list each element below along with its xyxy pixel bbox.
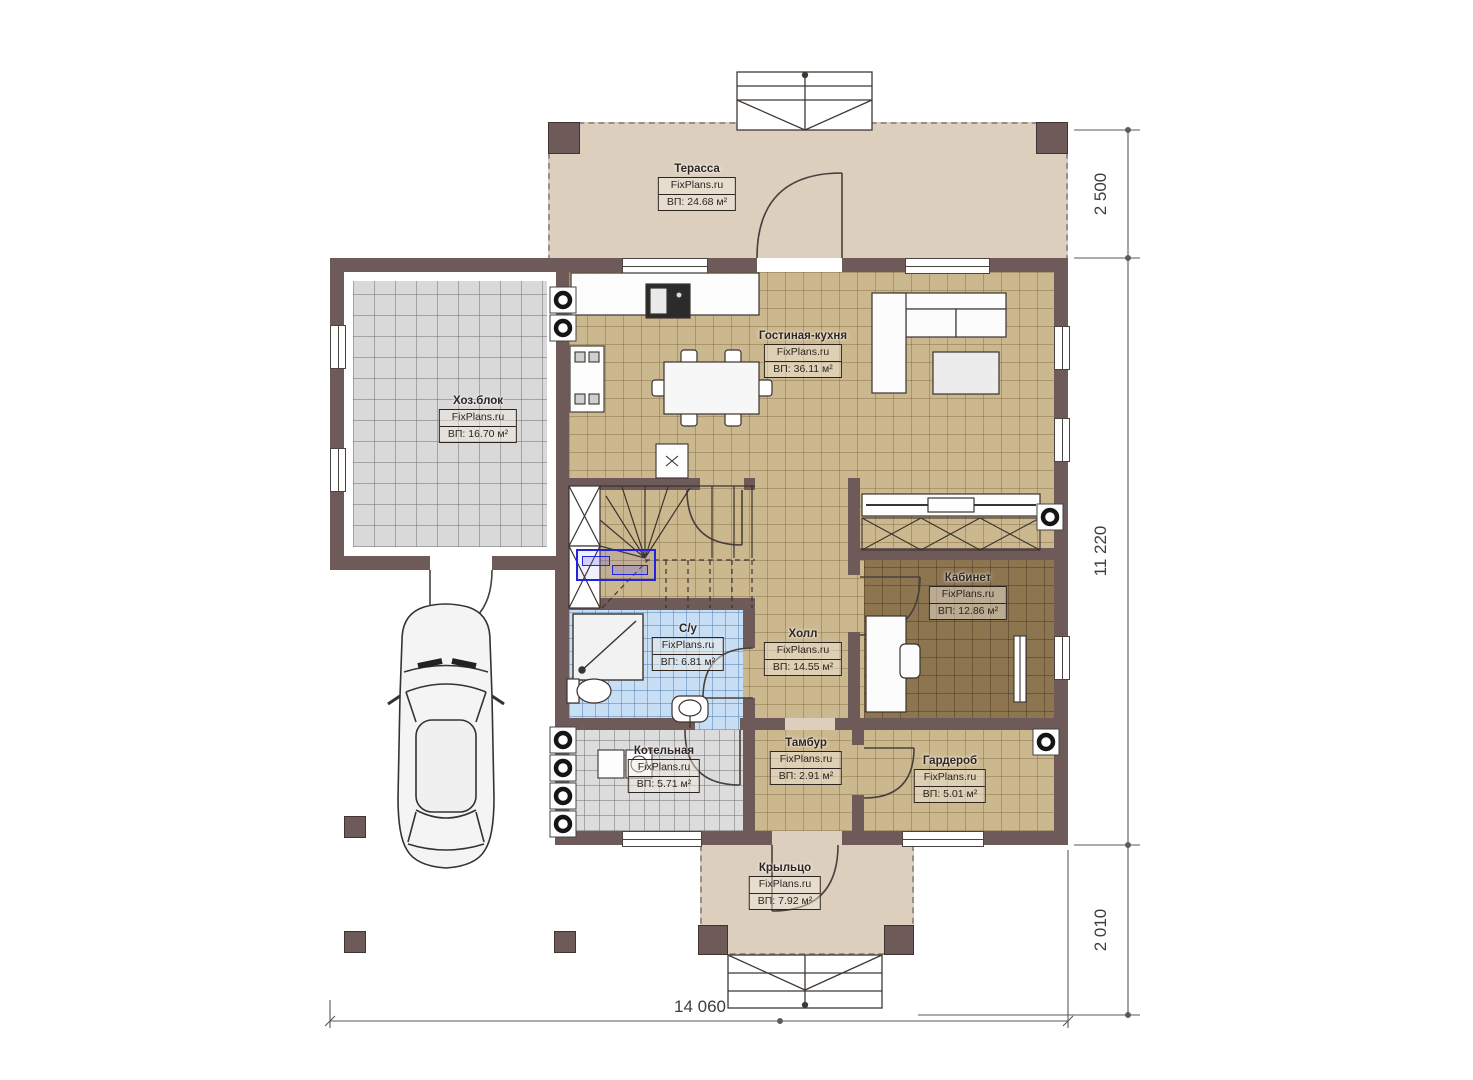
window-garage-left-2 [330,448,346,492]
room-name-bathroom: С/у [679,623,697,635]
site-marker-1 [344,816,366,838]
window-living-top [905,258,990,274]
room-name-wardrobe: Гардероб [923,755,977,767]
room-label-terrace: Терасса FixPlans.ru ВП: 24.68 м² [658,163,736,211]
watermark-text: FixPlans.ru [659,178,735,195]
room-area-utility: ВП: 16.70 м² [440,427,516,443]
wall-hall-study-upper [848,478,860,575]
site-marker-3 [554,931,576,953]
stair-selection-box[interactable] [576,549,656,581]
room-area-porch: ВП: 7.92 м² [750,894,820,910]
wall-hall-study-lower [848,632,860,730]
watermark-text: FixPlans.ru [765,345,841,362]
wall-living-hall-right [744,478,755,490]
dimension-right-middle: 11 220 [1091,511,1111,591]
window-living-right-2 [1054,418,1070,462]
watermark-text: FixPlans.ru [653,638,723,655]
room-name-vestibule: Тамбур [785,737,827,749]
stair-selection-chip-1 [582,556,610,566]
porch-post-right [884,925,914,955]
terrace-post-right [1036,122,1068,154]
room-area-boiler: ВП: 5.71 м² [629,777,699,793]
site-marker-2 [344,931,366,953]
room-name-utility: Хоз.блок [453,395,503,407]
room-label-bathroom: С/у FixPlans.ru ВП: 6.81 м² [652,623,724,671]
wall-vestibule-wardrobe-lower [852,795,864,831]
wall-vestibule-wardrobe-upper [852,730,864,745]
dimension-right-bottom: 2 010 [1091,890,1111,970]
room-area-bathroom: ВП: 6.81 м² [653,655,723,671]
wall-bathroom-right-upper [743,598,755,648]
door-opening-garage [430,556,492,570]
room-box-hall: FixPlans.ru ВП: 14.55 м² [764,642,842,676]
room-box-living-kitchen: FixPlans.ru ВП: 36.11 м² [764,344,842,378]
car [388,604,504,868]
room-label-vestibule: Тамбур FixPlans.ru ВП: 2.91 м² [770,737,842,785]
room-box-porch: FixPlans.ru ВП: 7.92 м² [749,876,821,910]
room-box-terrace: FixPlans.ru ВП: 24.68 м² [658,177,736,211]
room-label-boiler: Котельная FixPlans.ru ВП: 5.71 м² [628,745,700,793]
room-area-living-kitchen: ВП: 36.11 м² [765,362,841,378]
room-area-hall: ВП: 14.55 м² [765,660,841,676]
wall-study-top [848,548,1054,560]
window-living-right-1 [1054,326,1070,370]
stair-selection-chip-2 [612,565,648,575]
window-wardrobe-bottom [902,831,984,847]
room-name-porch: Крыльцо [759,862,811,874]
window-garage-left-1 [330,325,346,369]
door-opening-entry [772,831,842,845]
watermark-text: FixPlans.ru [765,643,841,660]
wall-boiler-vestibule [743,730,755,831]
room-label-utility: Хоз.блок FixPlans.ru ВП: 16.70 м² [439,395,517,443]
door-opening-terrace [757,258,842,272]
room-name-living-kitchen: Гостиная-кухня [759,330,847,342]
room-box-study: FixPlans.ru ВП: 12.86 м² [929,586,1007,620]
dimension-right-top: 2 500 [1091,154,1111,234]
dimension-bottom: 14 060 [630,997,770,1017]
window-boiler-bottom [622,831,702,847]
room-name-study: Кабинет [945,572,992,584]
watermark-text: FixPlans.ru [771,752,841,769]
room-label-living-kitchen: Гостиная-кухня FixPlans.ru ВП: 36.11 м² [759,330,847,378]
watermark-text: FixPlans.ru [930,587,1006,604]
terrace-post-left [548,122,580,154]
room-box-bathroom: FixPlans.ru ВП: 6.81 м² [652,637,724,671]
wall-lower-mid [740,718,785,730]
watermark-text: FixPlans.ru [915,770,985,787]
room-box-wardrobe: FixPlans.ru ВП: 5.01 м² [914,769,986,803]
wall-bathroom-top [569,598,743,610]
room-name-terrace: Терасса [674,163,720,175]
room-area-vestibule: ВП: 2.91 м² [771,769,841,785]
room-box-vestibule: FixPlans.ru ВП: 2.91 м² [770,751,842,785]
opening-hall-vestibule [785,718,835,730]
room-label-porch: Крыльцо FixPlans.ru ВП: 7.92 м² [749,862,821,910]
room-name-hall: Холл [789,628,818,640]
watermark-text: FixPlans.ru [440,410,516,427]
door-garage [430,570,492,632]
room-box-utility: FixPlans.ru ВП: 16.70 м² [439,409,517,443]
wall-living-hall-left [569,478,700,490]
room-label-study: Кабинет FixPlans.ru ВП: 12.86 м² [929,572,1007,620]
room-label-wardrobe: Гардероб FixPlans.ru ВП: 5.01 м² [914,755,986,803]
wall-lower-right [835,718,1054,730]
room-label-hall: Холл FixPlans.ru ВП: 14.55 м² [764,628,842,676]
watermark-text: FixPlans.ru [750,877,820,894]
room-area-terrace: ВП: 24.68 м² [659,195,735,211]
room-area-study: ВП: 12.86 м² [930,604,1006,620]
window-kitchen-top [622,258,708,274]
terrace-floor [548,122,1068,261]
room-area-wardrobe: ВП: 5.01 м² [915,787,985,803]
wall-lower-left [569,718,695,730]
floor-plan-canvas: Терасса FixPlans.ru ВП: 24.68 м² Гостина… [0,0,1473,1080]
room-box-boiler: FixPlans.ru ВП: 5.71 м² [628,759,700,793]
room-name-boiler: Котельная [634,745,694,757]
window-study-right [1054,636,1070,680]
porch-post-left [698,925,728,955]
watermark-text: FixPlans.ru [629,760,699,777]
